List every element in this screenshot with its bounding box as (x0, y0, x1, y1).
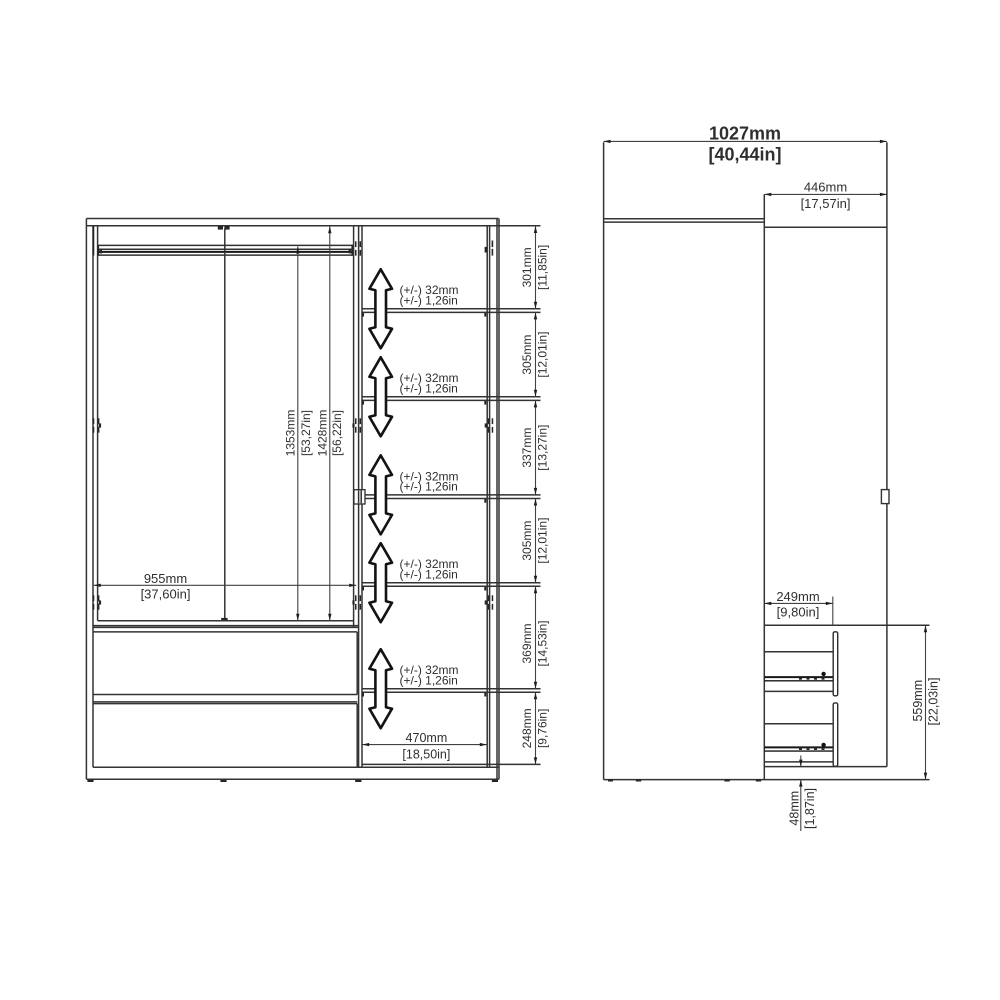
svg-text:[56,22in]: [56,22in] (330, 410, 344, 456)
svg-text:[12,01in]: [12,01in] (536, 518, 550, 564)
svg-text:305mm: 305mm (520, 335, 534, 375)
svg-text:337mm: 337mm (520, 428, 534, 468)
svg-text:249mm: 249mm (776, 589, 819, 604)
svg-text:(+/-) 1,26in: (+/-) 1,26in (400, 480, 458, 494)
svg-text:[40,44in]: [40,44in] (708, 144, 781, 164)
svg-text:[11,85in]: [11,85in] (536, 245, 550, 290)
svg-text:[9,76in]: [9,76in] (536, 709, 550, 748)
svg-text:[12,01in]: [12,01in] (536, 332, 550, 378)
svg-text:[1,87in]: [1,87in] (803, 788, 817, 829)
svg-text:470mm: 470mm (406, 731, 448, 745)
svg-text:(+/-) 1,26in: (+/-) 1,26in (400, 381, 458, 395)
svg-text:446mm: 446mm (804, 180, 847, 195)
svg-text:[13,27in]: [13,27in] (536, 425, 550, 471)
svg-text:1353mm: 1353mm (283, 410, 297, 457)
svg-text:[22,03in]: [22,03in] (927, 678, 941, 726)
svg-text:[53,27in]: [53,27in] (299, 410, 313, 456)
svg-text:[18,50in]: [18,50in] (402, 747, 450, 761)
svg-text:48mm: 48mm (788, 791, 802, 826)
svg-text:[37,60in]: [37,60in] (141, 587, 191, 602)
svg-text:[17,57in]: [17,57in] (801, 196, 851, 211)
svg-text:(+/-) 1,26in: (+/-) 1,26in (400, 567, 458, 581)
svg-text:248mm: 248mm (520, 708, 534, 748)
svg-text:(+/-) 1,26in: (+/-) 1,26in (400, 293, 458, 307)
svg-text:1027mm: 1027mm (709, 124, 781, 144)
svg-text:[14,53in]: [14,53in] (536, 620, 550, 666)
svg-text:305mm: 305mm (520, 521, 534, 561)
svg-text:559mm: 559mm (911, 680, 925, 722)
svg-text:369mm: 369mm (520, 623, 534, 663)
svg-text:1428mm: 1428mm (316, 410, 330, 457)
svg-text:(+/-) 1,26in: (+/-) 1,26in (400, 673, 458, 687)
svg-text:[9,80in]: [9,80in] (777, 605, 820, 620)
svg-text:301mm: 301mm (520, 247, 534, 287)
svg-text:955mm: 955mm (144, 571, 187, 586)
